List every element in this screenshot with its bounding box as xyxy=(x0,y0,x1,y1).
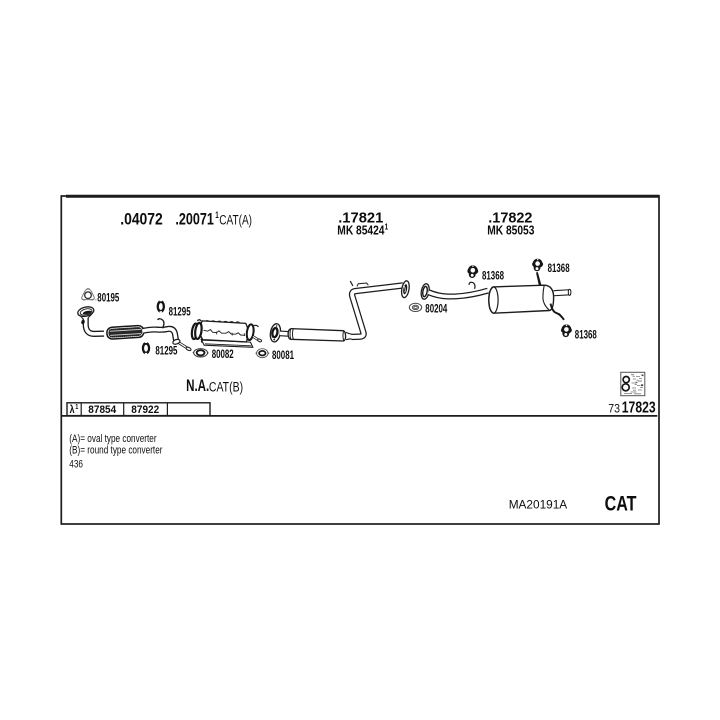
svg-text:CAT: CAT xyxy=(605,491,637,515)
svg-text:80081: 80081 xyxy=(272,349,294,362)
svg-text:80195: 80195 xyxy=(97,292,119,305)
svg-text:17823: 17823 xyxy=(622,398,656,416)
svg-text:87922: 87922 xyxy=(131,403,159,416)
svg-text:81368: 81368 xyxy=(548,262,570,275)
svg-text:MK 85424: MK 85424 xyxy=(337,225,385,238)
svg-text:(B)= round type converter: (B)= round type converter xyxy=(69,444,163,457)
svg-text:λ: λ xyxy=(70,404,75,416)
svg-text:436: 436 xyxy=(69,458,83,471)
svg-text:80082: 80082 xyxy=(212,348,234,361)
svg-text:81295: 81295 xyxy=(155,345,177,358)
svg-text:N.A.: N.A. xyxy=(186,377,209,396)
svg-text:87854: 87854 xyxy=(88,403,116,416)
svg-text:MA20191A: MA20191A xyxy=(509,497,567,511)
svg-text:81368: 81368 xyxy=(575,329,597,342)
svg-text:73: 73 xyxy=(608,403,620,416)
svg-text:CAT(A): CAT(A) xyxy=(219,212,252,228)
svg-text:MK 85053: MK 85053 xyxy=(487,225,535,238)
svg-text:81295: 81295 xyxy=(169,306,191,319)
svg-text:CAT(B): CAT(B) xyxy=(209,379,243,395)
svg-text:81368: 81368 xyxy=(482,270,504,283)
svg-text:1: 1 xyxy=(385,222,389,232)
svg-text:80204: 80204 xyxy=(425,303,447,316)
svg-text:1: 1 xyxy=(75,403,78,411)
svg-text:.20071: .20071 xyxy=(175,210,213,229)
svg-text:.04072: .04072 xyxy=(120,210,163,229)
